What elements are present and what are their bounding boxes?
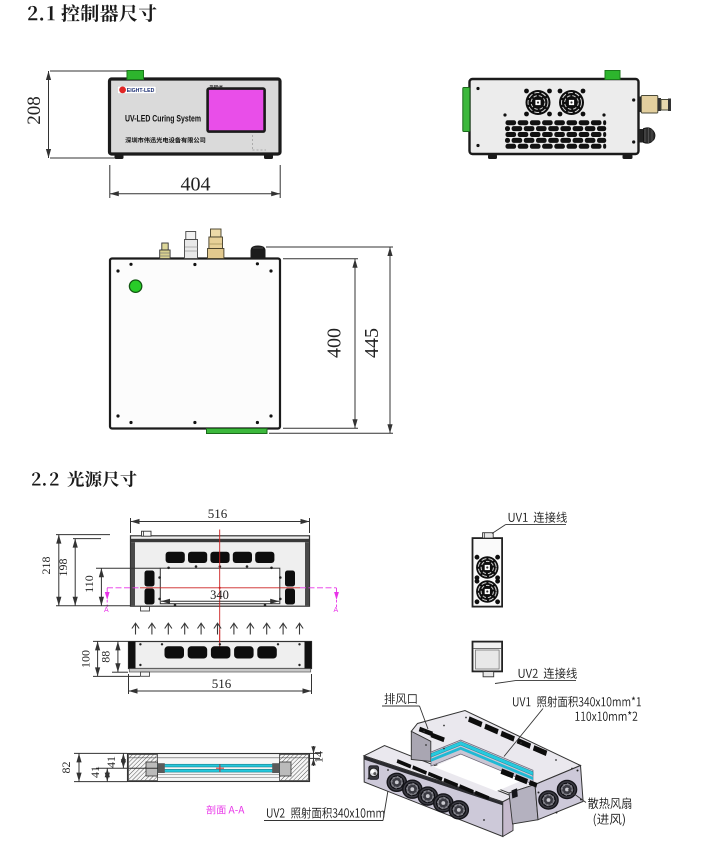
svg-text:110: 110 (82, 575, 96, 593)
svg-text:400: 400 (324, 328, 346, 358)
svg-text:UV-LED Curing System: UV-LED Curing System (125, 114, 201, 124)
svg-text:445: 445 (361, 328, 383, 358)
svg-text:198: 198 (56, 559, 70, 577)
svg-text:A: A (334, 607, 339, 614)
svg-text:218: 218 (39, 557, 53, 575)
svg-text:88: 88 (99, 651, 113, 663)
svg-text:404: 404 (181, 174, 211, 196)
svg-text:41: 41 (88, 766, 102, 778)
svg-text:340: 340 (210, 588, 229, 602)
svg-text:14: 14 (312, 751, 326, 763)
svg-text:82: 82 (59, 762, 73, 774)
svg-text:516: 516 (208, 506, 228, 521)
svg-text:100: 100 (78, 650, 92, 668)
svg-text:208: 208 (24, 96, 45, 125)
svg-text:A: A (104, 607, 109, 614)
svg-text:41: 41 (104, 756, 118, 768)
svg-text:516: 516 (212, 676, 232, 691)
svg-text:EIGHT-LED: EIGHT-LED (127, 88, 155, 94)
